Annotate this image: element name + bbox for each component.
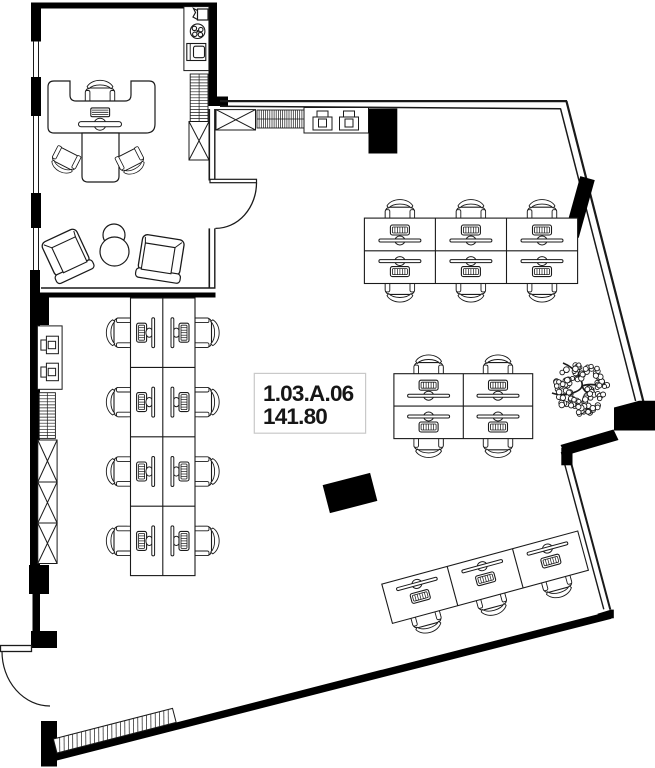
- svg-text:141.80: 141.80: [263, 404, 327, 429]
- svg-text:1.03.A.06: 1.03.A.06: [263, 381, 354, 406]
